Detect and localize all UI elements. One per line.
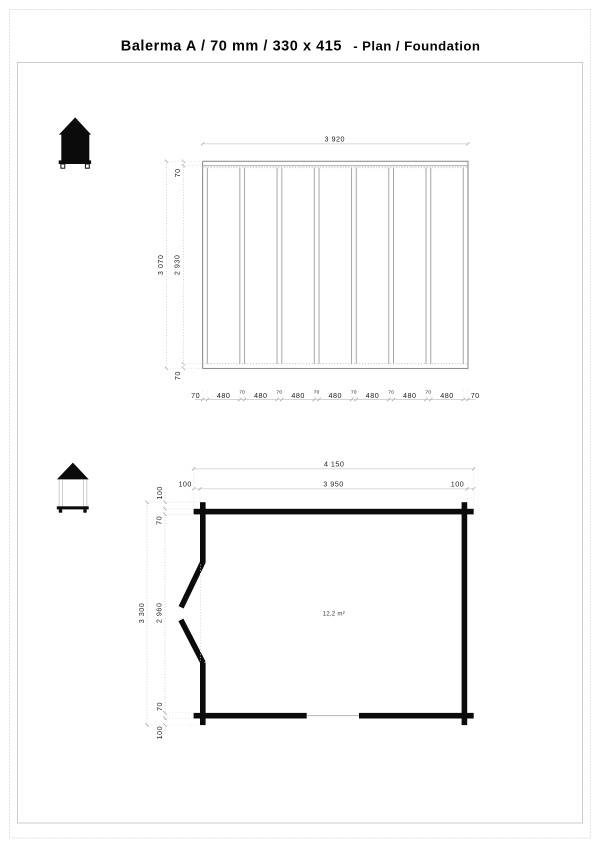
svg-text:70: 70 (173, 371, 182, 380)
svg-text:2 960: 2 960 (155, 603, 164, 624)
svg-text:100: 100 (178, 480, 192, 489)
svg-text:3 070: 3 070 (156, 255, 165, 276)
svg-text:70: 70 (155, 516, 164, 525)
svg-text:480: 480 (440, 391, 454, 400)
svg-text:70: 70 (239, 389, 245, 394)
svg-text:3 950: 3 950 (323, 480, 344, 489)
svg-text:480: 480 (254, 391, 268, 400)
svg-text:12,2 m²: 12,2 m² (323, 611, 345, 618)
svg-text:70: 70 (471, 391, 480, 400)
svg-text:100: 100 (155, 726, 164, 740)
svg-text:70: 70 (173, 168, 182, 177)
svg-text:- Plan / Foundation: - Plan / Foundation (353, 39, 480, 54)
svg-text:480: 480 (217, 391, 231, 400)
svg-text:4 150: 4 150 (324, 459, 345, 468)
svg-text:70: 70 (388, 389, 394, 394)
svg-text:480: 480 (329, 391, 343, 400)
svg-text:480: 480 (366, 391, 380, 400)
svg-text:70: 70 (277, 389, 283, 394)
svg-text:100: 100 (451, 480, 465, 489)
svg-text:70: 70 (191, 391, 200, 400)
svg-text:100: 100 (155, 486, 164, 500)
svg-text:70: 70 (155, 702, 164, 711)
svg-text:3 300: 3 300 (137, 603, 146, 624)
svg-text:3 920: 3 920 (325, 134, 346, 143)
svg-text:2 930: 2 930 (173, 255, 182, 276)
svg-text:70: 70 (351, 389, 357, 394)
svg-text:Balerma A / 70 mm / 330 x 415: Balerma A / 70 mm / 330 x 415 (121, 38, 342, 54)
svg-text:70: 70 (426, 389, 432, 394)
svg-text:70: 70 (314, 389, 320, 394)
svg-text:480: 480 (403, 391, 417, 400)
svg-text:480: 480 (291, 391, 305, 400)
